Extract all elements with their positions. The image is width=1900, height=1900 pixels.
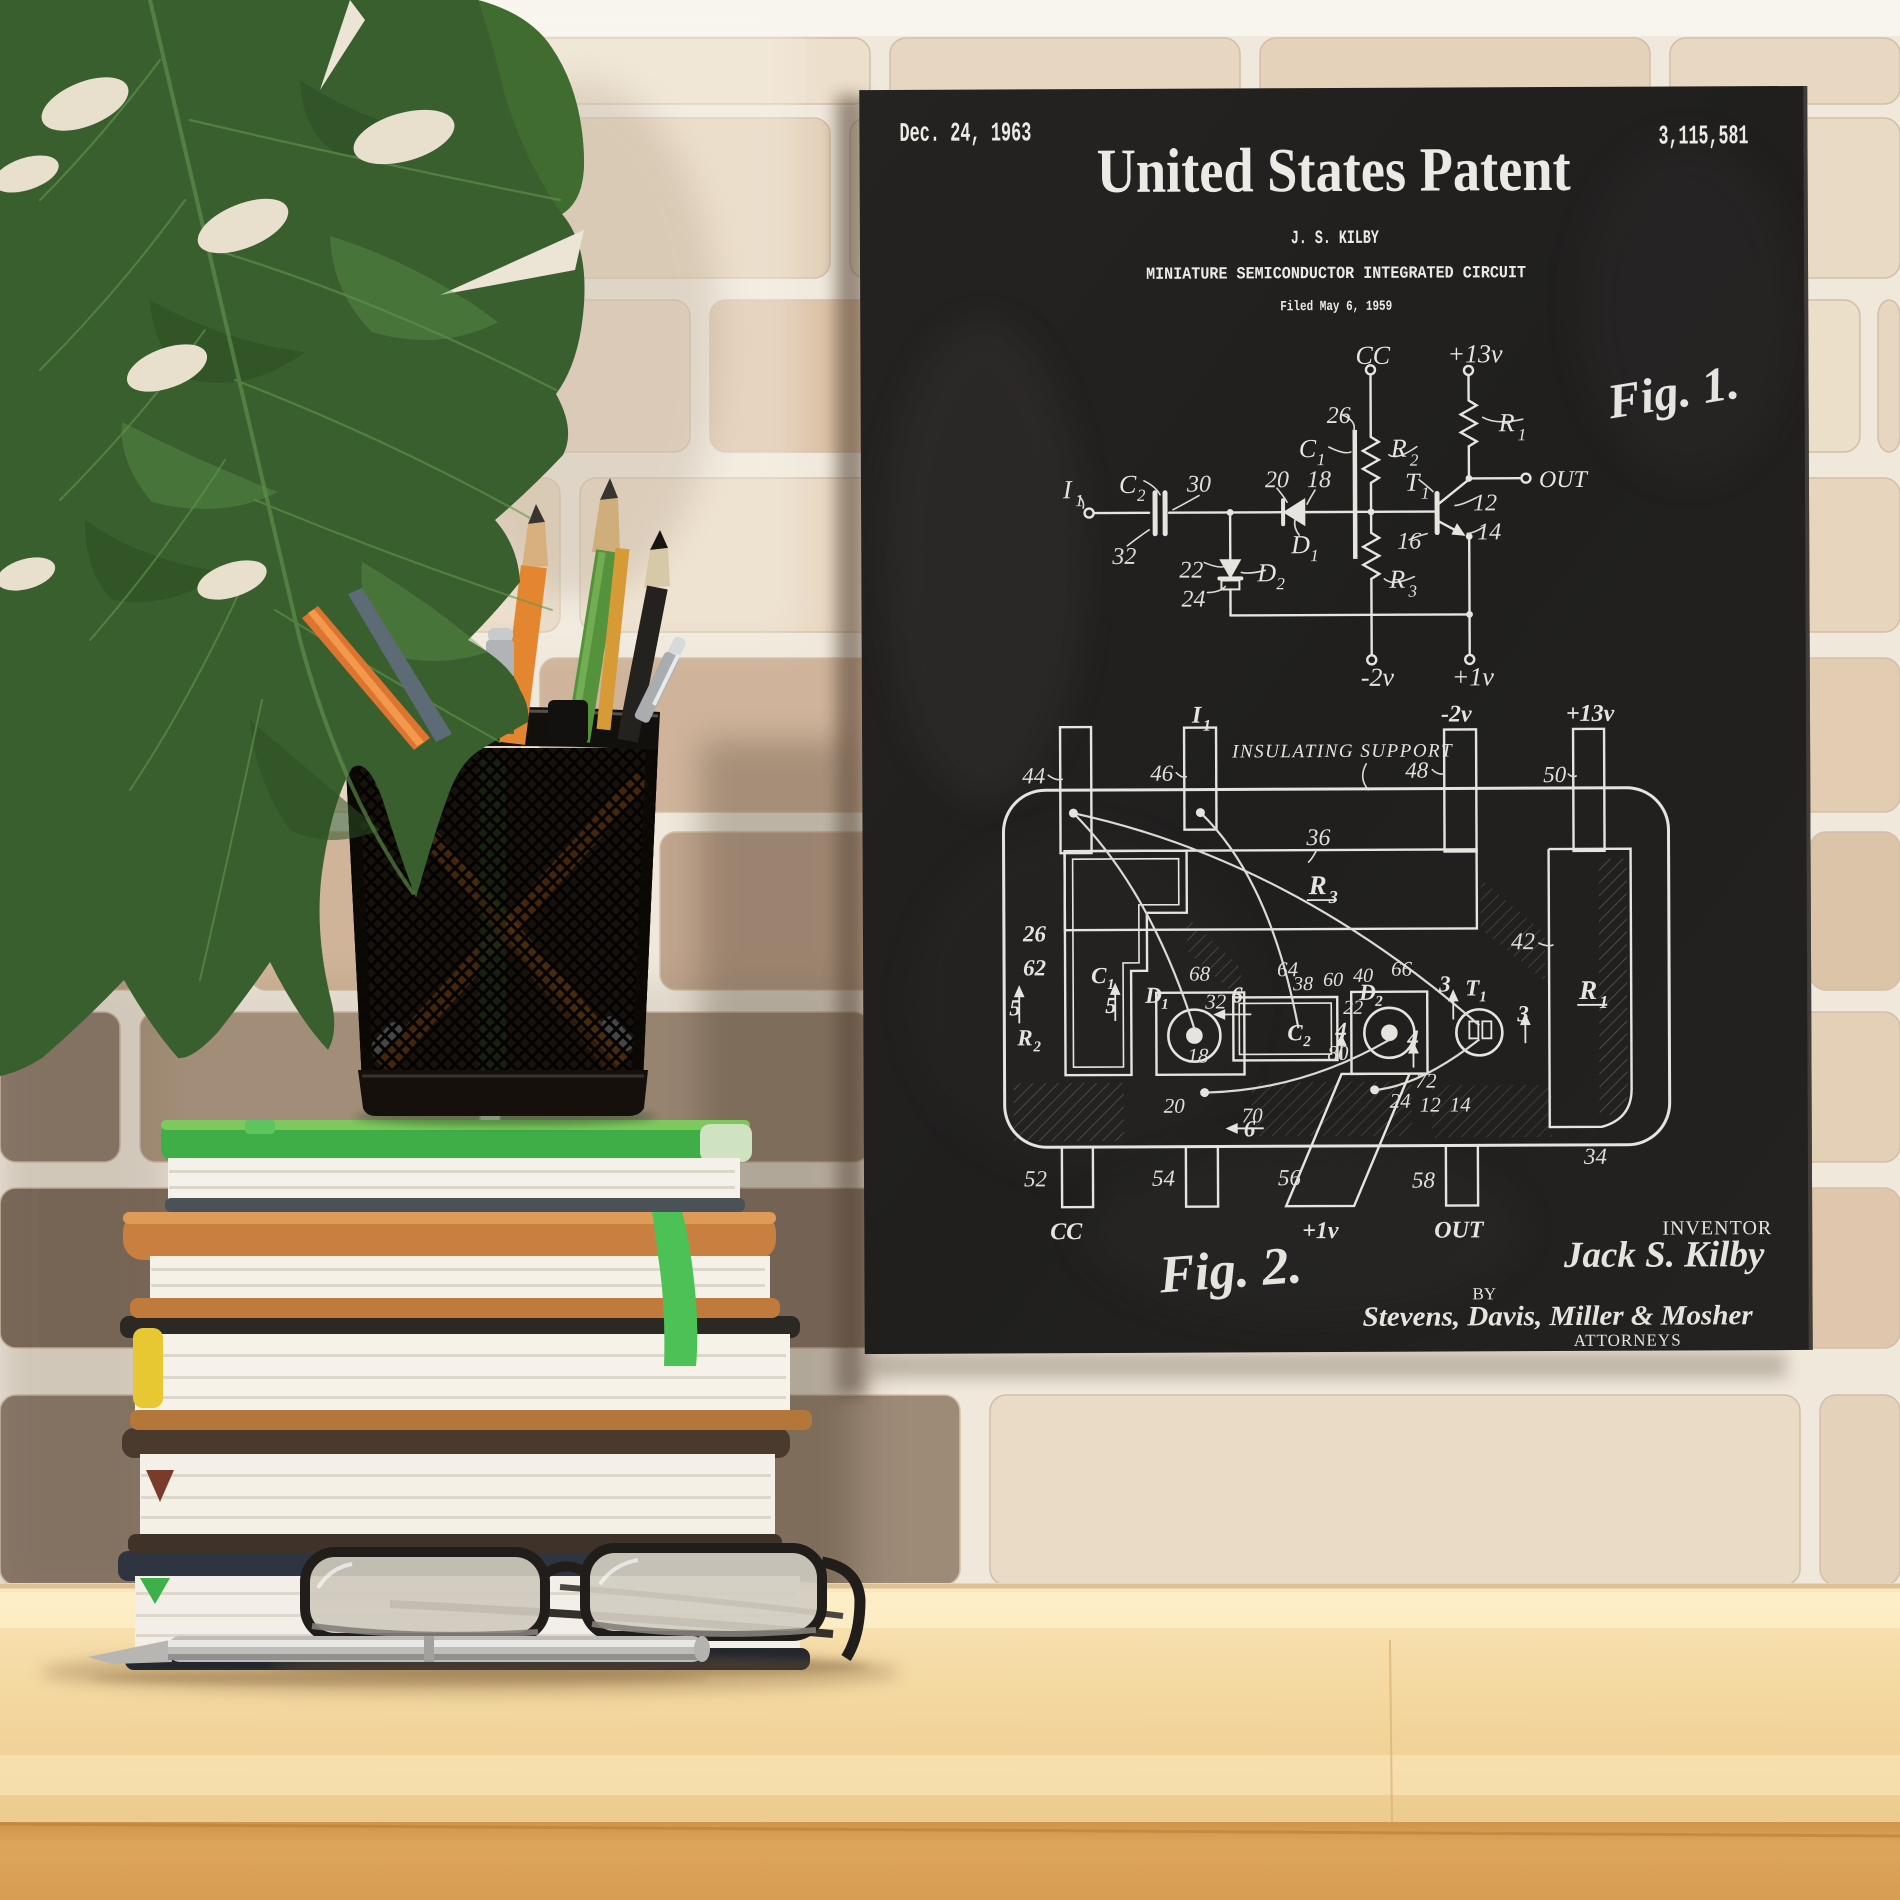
svg-text:34: 34 (1583, 1144, 1607, 1169)
svg-text:62: 62 (1023, 955, 1046, 980)
svg-text:D: D (1144, 983, 1162, 1008)
svg-text:Dec. 24, 1963: Dec. 24, 1963 (899, 119, 1031, 150)
svg-text:-2v: -2v (1361, 663, 1395, 692)
svg-text:36: 36 (1305, 825, 1330, 851)
svg-text:44: 44 (1022, 763, 1045, 788)
svg-text:MINIATURE SEMICONDUCTOR INTEGR: MINIATURE SEMICONDUCTOR INTEGRATED CIRCU… (1146, 264, 1526, 285)
svg-text:3: 3 (1407, 582, 1417, 601)
svg-text:22: 22 (1179, 558, 1203, 584)
svg-text:32: 32 (1111, 544, 1136, 570)
svg-text:2: 2 (1032, 1039, 1041, 1055)
svg-text:14: 14 (1450, 1092, 1472, 1116)
svg-text:20: 20 (1265, 467, 1289, 493)
svg-text:+13v: +13v (1566, 701, 1615, 727)
svg-text:C: C (1091, 963, 1107, 988)
svg-text:2: 2 (1302, 1034, 1311, 1050)
svg-text:56: 56 (1278, 1165, 1302, 1190)
svg-text:1: 1 (1599, 992, 1608, 1012)
svg-text:26: 26 (1327, 403, 1351, 429)
svg-text:14: 14 (1477, 519, 1501, 545)
svg-text:16: 16 (1397, 529, 1421, 555)
svg-text:46: 46 (1150, 761, 1174, 786)
svg-text:58: 58 (1412, 1168, 1436, 1193)
svg-text:CC: CC (1355, 341, 1390, 370)
svg-text:1: 1 (1310, 546, 1319, 565)
svg-text:I: I (1191, 703, 1203, 729)
svg-text:D: D (1256, 558, 1276, 587)
svg-text:R: R (1016, 1025, 1032, 1050)
svg-text:C: C (1299, 434, 1317, 463)
svg-text:12: 12 (1420, 1093, 1442, 1117)
svg-text:1: 1 (1518, 425, 1527, 444)
svg-text:26: 26 (1022, 921, 1047, 946)
svg-text:3: 3 (1438, 972, 1451, 997)
svg-text:R: R (1388, 565, 1405, 594)
svg-text:1: 1 (1075, 491, 1084, 510)
svg-text:Jack S. Kilby: Jack S. Kilby (1563, 1234, 1765, 1276)
svg-text:I: I (1062, 475, 1073, 504)
svg-text:24: 24 (1181, 587, 1205, 613)
svg-text:OUT: OUT (1539, 467, 1589, 493)
svg-text:D: D (1290, 530, 1310, 559)
svg-text:66: 66 (1391, 957, 1413, 981)
svg-text:6: 6 (1231, 982, 1243, 1007)
svg-text:38: 38 (1292, 973, 1313, 995)
svg-text:54: 54 (1152, 1166, 1175, 1191)
svg-text:2: 2 (1374, 994, 1383, 1010)
svg-text:R: R (1308, 870, 1327, 900)
svg-text:48: 48 (1405, 758, 1429, 783)
svg-text:2: 2 (1276, 574, 1285, 593)
svg-text:30: 30 (1186, 472, 1211, 498)
svg-text:20: 20 (1164, 1094, 1186, 1118)
svg-text:Filed May 6, 1959: Filed May 6, 1959 (1280, 299, 1392, 315)
svg-text:68: 68 (1189, 962, 1211, 986)
svg-text:3,115,581: 3,115,581 (1658, 122, 1748, 152)
svg-text:+1v: +1v (1302, 1218, 1339, 1244)
svg-text:C: C (1119, 470, 1137, 499)
svg-text:1: 1 (1161, 997, 1169, 1013)
svg-text:R: R (1578, 975, 1597, 1005)
svg-text:52: 52 (1024, 1166, 1047, 1191)
svg-text:United States Patent: United States Patent (1096, 134, 1570, 206)
svg-text:24: 24 (1390, 1089, 1412, 1113)
svg-text:-2v: -2v (1441, 701, 1472, 727)
svg-text:3: 3 (1328, 887, 1338, 907)
svg-text:2: 2 (1137, 486, 1146, 505)
svg-text:60: 60 (1323, 969, 1343, 991)
svg-text:+13v: +13v (1447, 339, 1503, 368)
svg-text:1: 1 (1479, 989, 1487, 1005)
svg-text:ATTORNEYS: ATTORNEYS (1574, 1330, 1682, 1349)
svg-text:1: 1 (1203, 718, 1211, 735)
svg-text:CC: CC (1050, 1219, 1083, 1245)
svg-text:Fig. 2.: Fig. 2. (1156, 1236, 1304, 1304)
svg-text:1: 1 (1421, 484, 1430, 503)
svg-text:D: D (1358, 980, 1376, 1005)
svg-text:12: 12 (1473, 490, 1497, 516)
svg-text:+1v: +1v (1452, 662, 1495, 691)
svg-text:OUT: OUT (1434, 1217, 1485, 1243)
svg-text:72: 72 (1416, 1069, 1438, 1093)
svg-text:18: 18 (1307, 467, 1331, 493)
svg-text:C: C (1287, 1020, 1303, 1045)
svg-text:J. S. KILBY: J. S. KILBY (1291, 227, 1380, 249)
svg-text:Stevens, Davis, Miller & Moshe: Stevens, Davis, Miller & Mosher (1363, 1300, 1754, 1333)
svg-text:R: R (1498, 408, 1515, 437)
svg-text:T: T (1465, 975, 1480, 1000)
svg-text:T: T (1405, 468, 1421, 497)
svg-text:R: R (1390, 434, 1407, 463)
svg-text:50: 50 (1543, 762, 1567, 787)
svg-text:18: 18 (1187, 1044, 1209, 1068)
